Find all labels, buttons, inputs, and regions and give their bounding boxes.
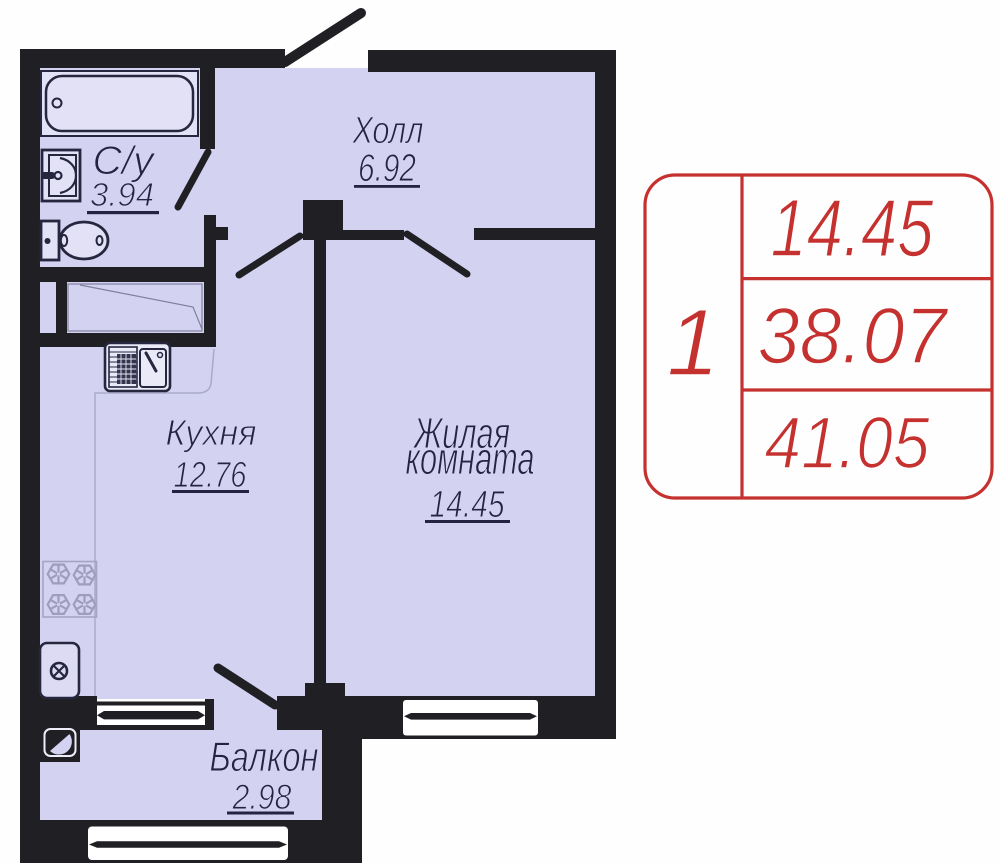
svg-text:38.07: 38.07 <box>758 291 949 380</box>
svg-text:Балкон: Балкон <box>210 733 319 780</box>
svg-text:комната: комната <box>406 433 535 484</box>
svg-text:41.05: 41.05 <box>765 403 930 484</box>
svg-text:14.45: 14.45 <box>430 484 506 526</box>
svg-text:3.94: 3.94 <box>90 176 154 213</box>
svg-text:2.98: 2.98 <box>232 778 292 817</box>
svg-text:14.45: 14.45 <box>771 183 934 274</box>
svg-text:Кухня: Кухня <box>166 412 257 453</box>
svg-text:Холл: Холл <box>352 110 424 152</box>
svg-text:1: 1 <box>667 290 720 396</box>
svg-text:6.92: 6.92 <box>358 147 416 190</box>
svg-text:12.76: 12.76 <box>174 454 248 495</box>
